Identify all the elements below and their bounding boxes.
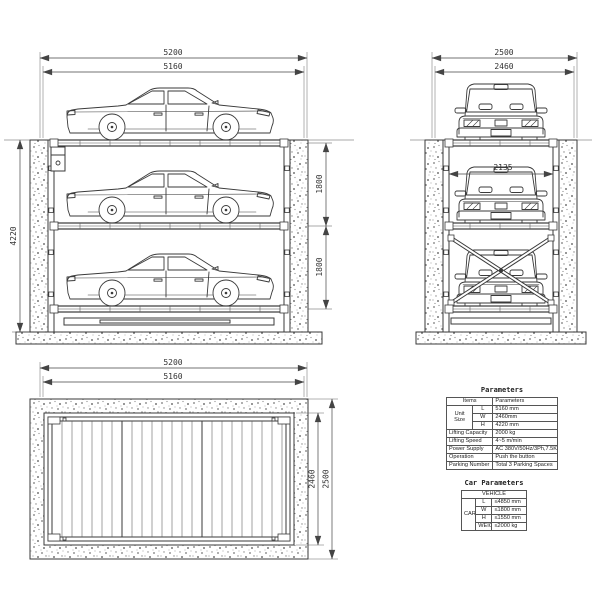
dim-front-inner-width: 2460 — [494, 62, 513, 71]
parameters-title: Parameters — [446, 386, 558, 394]
car-side-level3 — [67, 254, 273, 306]
side-elevation-view: 5200 5160 — [4, 48, 354, 344]
front-right-wall — [559, 140, 577, 332]
dim-level-lower: 1800 — [315, 257, 324, 276]
side-right-wall — [290, 140, 308, 332]
table-row: Lifting Capacity 2000 kg — [447, 429, 558, 437]
parameters-table: Items Parameters Unit Size L 5160 mm W 2… — [446, 397, 558, 470]
plan-platform — [48, 417, 290, 541]
platform-bottom — [50, 305, 288, 313]
vehicle-header: VEHICLE — [462, 491, 527, 499]
side-floor-slab — [16, 332, 322, 344]
table-row: Parking Number Total 3 Parking Spaces — [447, 461, 558, 469]
unit-size-label: Unit Size — [447, 405, 473, 429]
table-row: Lifting Speed 4~5 m/min — [447, 437, 558, 445]
car-parameters-table: VEHICLE CAR L ≤4850 mm W ≤1800 mm H ≤155… — [461, 490, 527, 531]
front-rail-clips — [444, 166, 559, 297]
car-side-level2 — [67, 171, 273, 223]
plan-view: 5200 5160 2460 2500 — [30, 358, 338, 559]
platform-grade — [50, 139, 288, 147]
dim-plan-inner-width: 2460 — [308, 469, 317, 488]
car-parameters-panel: Car Parameters VEHICLE CAR L ≤4850 mm W … — [461, 479, 527, 531]
dim-side-inner-width: 5160 — [163, 62, 182, 71]
car-side-level1 — [67, 88, 273, 140]
parameters-panel: Parameters Items Parameters Unit Size L … — [446, 386, 558, 470]
table-row: Operation Push the button — [447, 453, 558, 461]
car-group-label: CAR — [462, 498, 476, 530]
dim-plan-outer-length: 5200 — [163, 358, 182, 367]
drawing-canvas: 5200 5160 — [0, 0, 600, 600]
side-left-wall — [30, 140, 48, 332]
car-front-level3 — [455, 250, 547, 306]
table-row: Power Supply AC 380V/50Hz/3Ph,7.5Kw — [447, 445, 558, 453]
table-row: CAR L ≤4850 mm — [462, 498, 527, 506]
table-row: Unit Size L 5160 mm — [447, 405, 558, 413]
col-header-items: Items — [447, 398, 493, 406]
dim-pit-depth: 4220 — [9, 226, 18, 245]
dim-side-outer-width: 5200 — [163, 48, 182, 57]
front-elevation-view: 2500 2460 — [410, 48, 592, 344]
platform-mid — [50, 222, 288, 230]
col-header-parameters: Parameters — [493, 398, 558, 406]
car-front-level1 — [455, 84, 547, 140]
dim-level-upper: 1800 — [315, 174, 324, 193]
car-front-level2 — [455, 167, 547, 223]
dim-front-outer-width: 2500 — [494, 48, 513, 57]
front-floor-slab — [416, 332, 586, 344]
dim-platform-width: 2135 — [493, 163, 512, 172]
front-left-wall — [425, 140, 443, 332]
car-parameters-title: Car Parameters — [461, 479, 527, 487]
table-row: Items Parameters — [447, 398, 558, 406]
dim-plan-inner-length: 5160 — [163, 372, 182, 381]
dim-plan-outer-width: 2500 — [322, 469, 331, 488]
table-row: VEHICLE — [462, 491, 527, 499]
base-frame — [64, 318, 274, 325]
